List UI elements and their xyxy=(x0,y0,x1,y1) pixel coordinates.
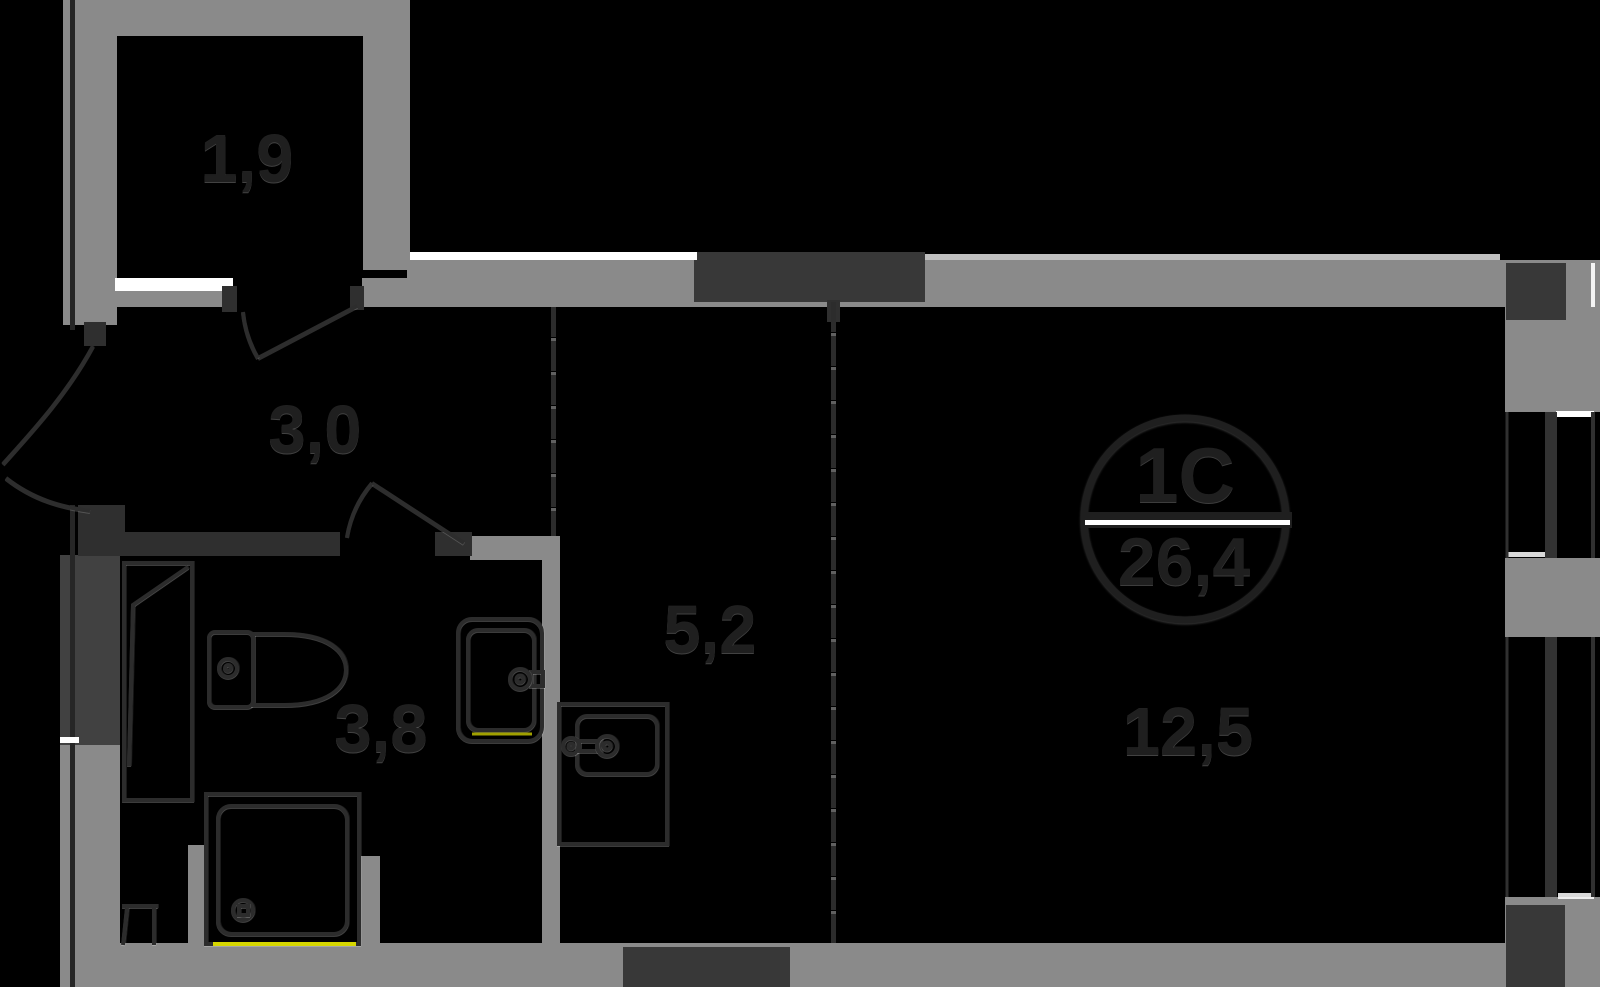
wall-balcony-right-foot xyxy=(362,278,410,307)
wall-closet-stub xyxy=(188,845,204,943)
window1-top-sill xyxy=(1556,411,1594,417)
shaft-top-center xyxy=(694,252,925,302)
room-label-balcony: 1,9 xyxy=(200,122,293,197)
top-wall-edge-left xyxy=(410,252,697,260)
wall-left-outer-edge-top xyxy=(70,0,75,330)
room-label-living: 12,5 xyxy=(1123,695,1253,770)
wall-entry-top-stub xyxy=(75,290,117,325)
shaft-bottom-center xyxy=(623,947,790,987)
wall-balcony-right xyxy=(363,0,410,270)
unit-type-label: 1С xyxy=(1135,431,1235,519)
wall-bottom xyxy=(60,943,1600,987)
window2-mullion xyxy=(1545,637,1557,897)
wall-left-outer-edge-bottom xyxy=(70,505,75,987)
room-label-kitchen: 5,2 xyxy=(663,593,756,668)
unit-info-badge: 1С 26,4 xyxy=(1083,418,1292,620)
floor-plan: 1,9 3,0 3,8 5,2 12,5 1С 26,4 xyxy=(0,0,1600,987)
right-corner-edge xyxy=(1591,263,1595,307)
wall-bath-top-left xyxy=(115,532,340,556)
top-wall-edge-right xyxy=(925,254,1500,260)
pier-mid-top-sill xyxy=(1507,552,1545,557)
balcony-window-sill xyxy=(115,278,233,291)
window2-bottom-sill xyxy=(1558,893,1594,899)
shaft-bottom-right xyxy=(1506,905,1565,987)
left-wall-notch xyxy=(60,737,79,743)
wall-shower-stub xyxy=(358,856,380,943)
wall-top-main xyxy=(407,260,1506,307)
entrance-door-jamb-bottom xyxy=(78,505,125,556)
unit-area-label: 26,4 xyxy=(1118,524,1251,600)
room-label-bathroom: 3,8 xyxy=(334,692,427,767)
wall-bath-top-right xyxy=(470,536,542,560)
wall-left-shaft xyxy=(60,555,120,745)
floor-plan-page: 1,9 3,0 3,8 5,2 12,5 1С 26,4 xyxy=(0,0,1600,987)
wall-balcony-sill-base xyxy=(115,290,233,307)
balcony-door-jamb-left xyxy=(222,286,237,312)
wall-right-pier-mid xyxy=(1505,558,1600,637)
shaft-top-right xyxy=(1506,263,1566,320)
wall-left-lower xyxy=(60,745,120,987)
entrance-door-jamb-top xyxy=(84,322,106,346)
window1-mullion xyxy=(1545,412,1557,558)
room-label-hallway: 3,0 xyxy=(268,393,361,468)
